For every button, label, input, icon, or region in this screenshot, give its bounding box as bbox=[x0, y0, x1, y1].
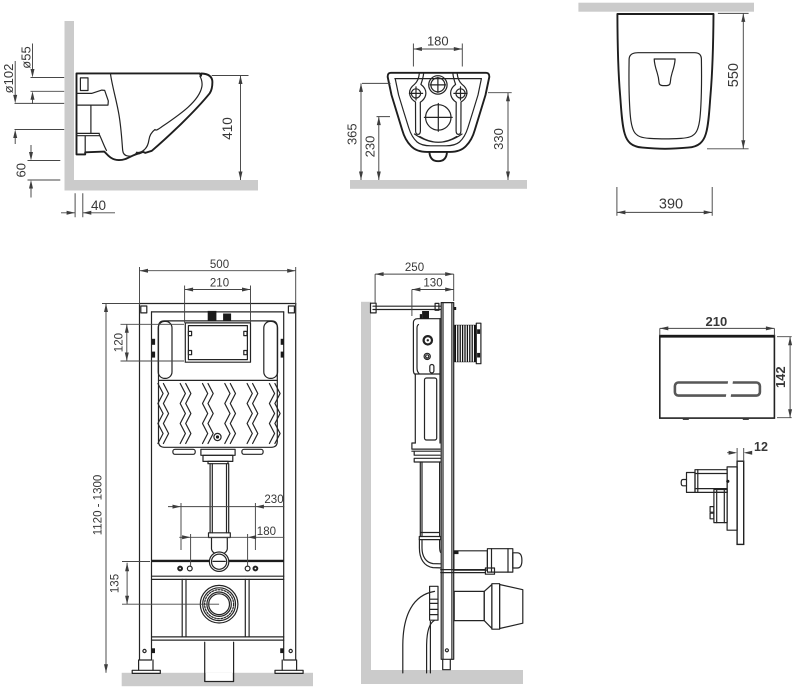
svg-text:60: 60 bbox=[14, 163, 29, 177]
svg-text:210: 210 bbox=[210, 278, 229, 290]
svg-text:130: 130 bbox=[423, 278, 442, 290]
svg-text:390: 390 bbox=[659, 197, 683, 213]
svg-text:40: 40 bbox=[91, 198, 106, 213]
svg-text:120: 120 bbox=[113, 333, 125, 352]
svg-text:180: 180 bbox=[427, 34, 449, 49]
svg-text:410: 410 bbox=[220, 117, 235, 140]
svg-text:330: 330 bbox=[491, 128, 506, 150]
svg-text:12: 12 bbox=[754, 440, 768, 454]
svg-text:500: 500 bbox=[210, 259, 229, 271]
svg-text:ø55: ø55 bbox=[19, 46, 34, 68]
svg-text:180: 180 bbox=[257, 526, 276, 538]
svg-text:230: 230 bbox=[362, 136, 377, 158]
svg-text:142: 142 bbox=[773, 366, 788, 388]
svg-text:1120 - 1300: 1120 - 1300 bbox=[93, 475, 105, 536]
svg-text:365: 365 bbox=[345, 123, 360, 145]
svg-text:250: 250 bbox=[405, 262, 424, 274]
svg-text:ø102: ø102 bbox=[1, 64, 16, 94]
svg-text:210: 210 bbox=[706, 314, 728, 329]
svg-text:135: 135 bbox=[110, 574, 122, 593]
svg-text:550: 550 bbox=[726, 63, 742, 87]
svg-text:230: 230 bbox=[264, 494, 283, 506]
